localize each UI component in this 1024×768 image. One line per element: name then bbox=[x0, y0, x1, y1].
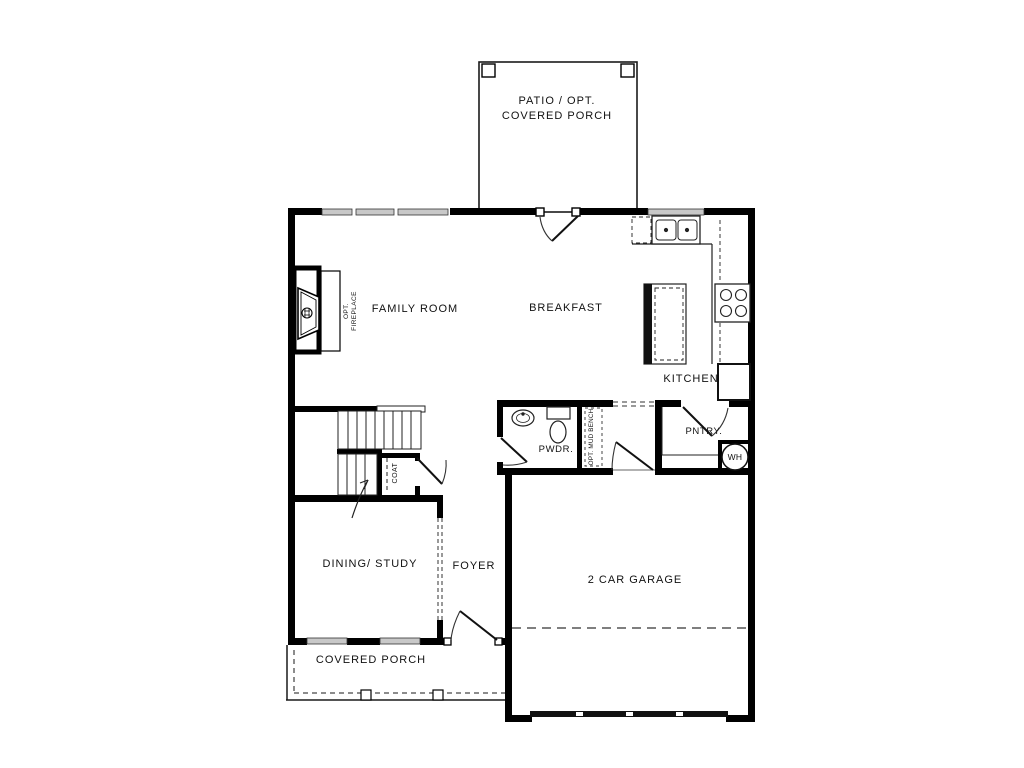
covered-porch-label: COVERED PORCH bbox=[291, 654, 451, 666]
patio-post bbox=[621, 64, 634, 77]
kitchen-sink bbox=[652, 216, 700, 244]
kitchen-island bbox=[644, 284, 686, 364]
kitchen-label: KITCHEN bbox=[641, 373, 741, 385]
garage-door bbox=[530, 711, 728, 717]
coat-door-swing bbox=[442, 460, 446, 484]
garage-entry-door-swing bbox=[612, 442, 616, 470]
coat-label: COAT bbox=[392, 453, 404, 493]
powder-fixtures bbox=[512, 407, 570, 443]
hearth bbox=[321, 271, 340, 351]
toilet-tank bbox=[547, 407, 570, 419]
toilet-bowl bbox=[550, 421, 566, 443]
front-door-leaf bbox=[460, 611, 497, 640]
patio-door-leaf bbox=[552, 216, 578, 241]
powder-door-leaf bbox=[501, 438, 527, 462]
dining-study-label: DINING/ STUDY bbox=[290, 558, 450, 570]
fireplace-label-line1: OPT. bbox=[343, 276, 351, 346]
hall-header-dashed bbox=[613, 402, 655, 406]
patio-label: PATIO / OPT. COVERED PORCH bbox=[477, 94, 637, 124]
patio-door-swing bbox=[540, 217, 552, 241]
patio-label-line2: COVERED PORCH bbox=[477, 109, 637, 124]
kitchen-window bbox=[648, 209, 704, 215]
mud-bench-label: OPT. MUD BENCH bbox=[588, 405, 598, 469]
fireplace-label-line2: FIREPLACE bbox=[351, 276, 359, 346]
patio-outline bbox=[479, 62, 637, 212]
cooktop bbox=[715, 284, 750, 322]
foyer-label: FOYER bbox=[434, 560, 514, 572]
powder-door-swing bbox=[503, 462, 527, 465]
powder-label: PWDR. bbox=[526, 444, 586, 455]
patio-post bbox=[482, 64, 495, 77]
floor-plan: PATIO / OPT. COVERED PORCH FAMILY ROOM B… bbox=[0, 0, 1024, 768]
garage-label: 2 CAR GARAGE bbox=[555, 574, 715, 586]
fireplace bbox=[294, 268, 340, 352]
family-room-label: FAMILY ROOM bbox=[355, 303, 475, 315]
coat-door-leaf bbox=[417, 458, 442, 484]
fireplace-label: OPT. FIREPLACE bbox=[343, 276, 361, 346]
breakfast-label: BREAKFAST bbox=[506, 302, 626, 314]
pantry-label: PNTRY. bbox=[674, 426, 734, 437]
porch-post bbox=[433, 690, 443, 700]
water-heater-label: WH bbox=[720, 452, 750, 462]
porch-post bbox=[361, 690, 371, 700]
front-door-swing bbox=[451, 611, 460, 640]
patio-label-line1: PATIO / OPT. bbox=[477, 94, 637, 109]
garage-entry-door-leaf bbox=[616, 442, 653, 470]
